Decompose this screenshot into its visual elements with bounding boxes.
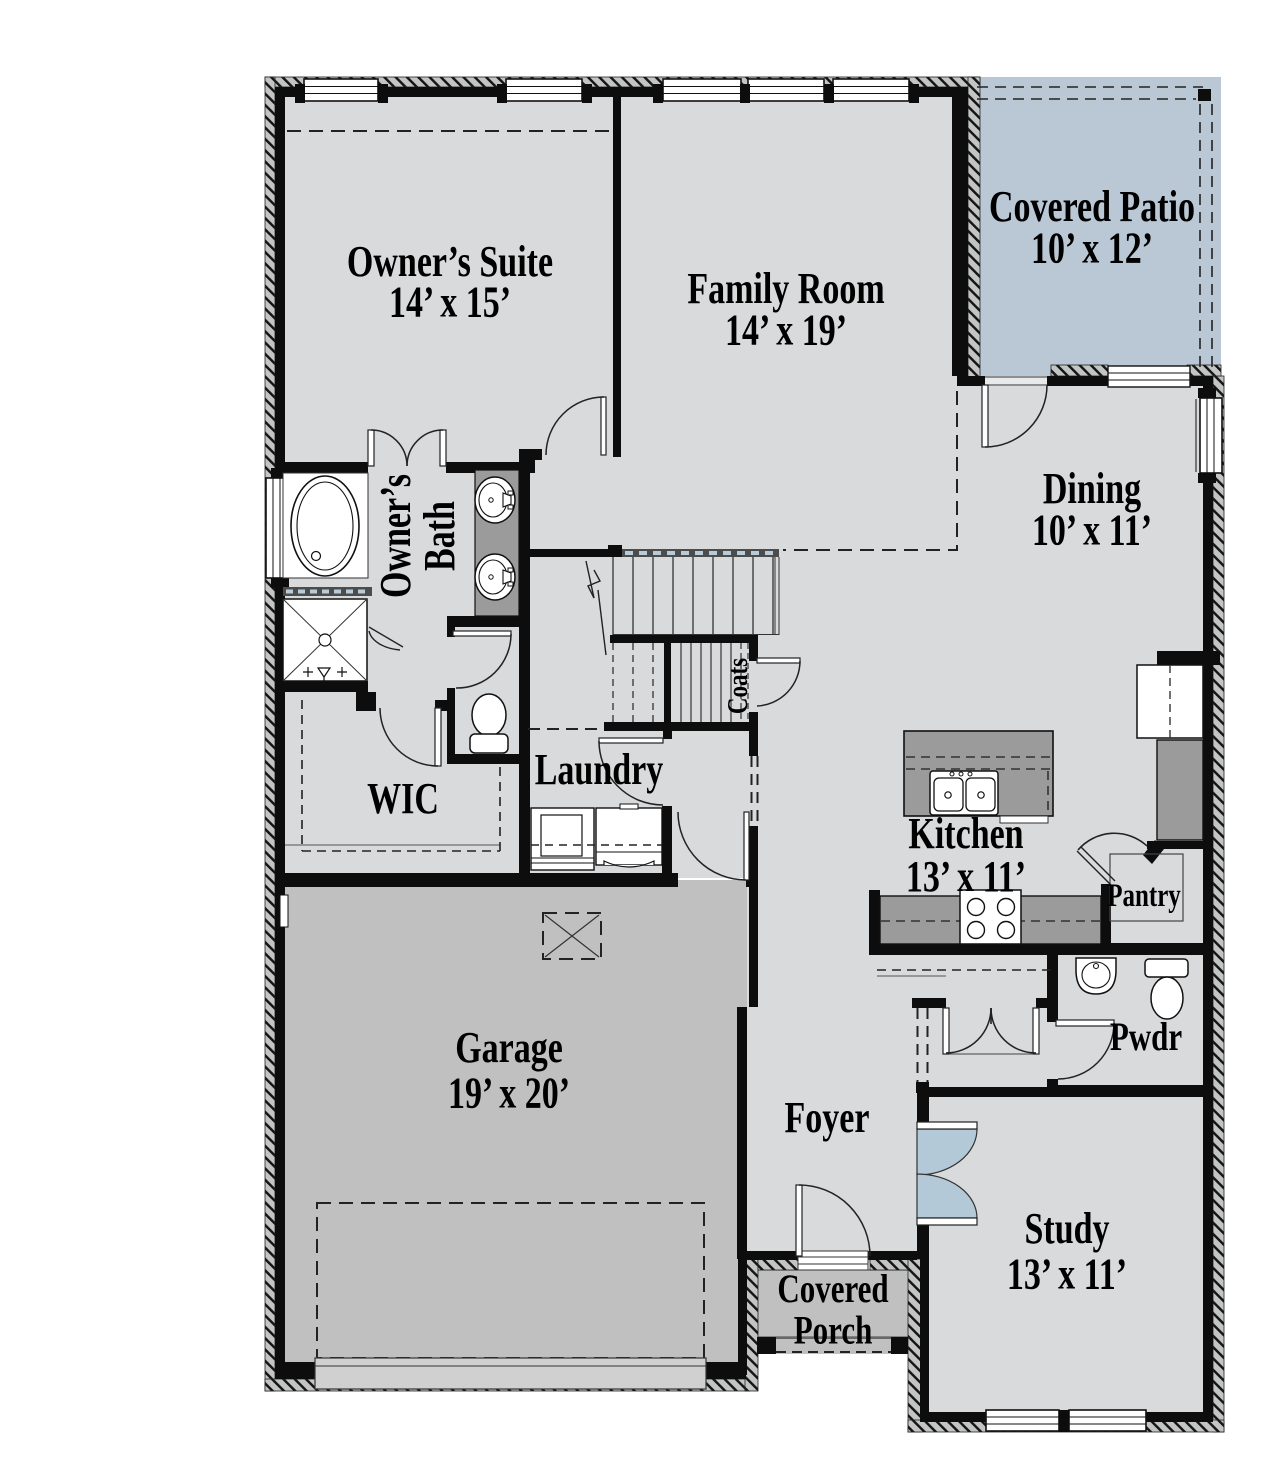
svg-text:WIC: WIC	[367, 774, 439, 823]
svg-text:Study: Study	[1024, 1204, 1109, 1253]
svg-text:14’ x 15’: 14’ x 15’	[389, 277, 511, 326]
svg-text:Bath: Bath	[415, 501, 464, 571]
svg-text:Laundry: Laundry	[535, 745, 664, 794]
svg-text:Covered: Covered	[777, 1266, 888, 1311]
svg-text:13’ x 11’: 13’ x 11’	[1007, 1249, 1127, 1298]
svg-text:Foyer: Foyer	[785, 1093, 870, 1142]
svg-text:10’ x 11’: 10’ x 11’	[1032, 505, 1152, 554]
svg-text:Garage: Garage	[455, 1023, 563, 1072]
svg-text:Owner’s: Owner’s	[371, 474, 420, 598]
svg-text:Pwdr: Pwdr	[1110, 1014, 1182, 1059]
svg-text:Porch: Porch	[794, 1308, 873, 1353]
svg-text:Pantry: Pantry	[1107, 878, 1181, 914]
svg-text:10’ x 12’: 10’ x 12’	[1031, 223, 1153, 272]
svg-text:Coats: Coats	[722, 658, 754, 714]
svg-text:19’ x 20’: 19’ x 20’	[448, 1068, 570, 1117]
svg-text:13’ x 11’: 13’ x 11’	[906, 852, 1026, 901]
svg-text:14’ x 19’: 14’ x 19’	[725, 305, 847, 354]
